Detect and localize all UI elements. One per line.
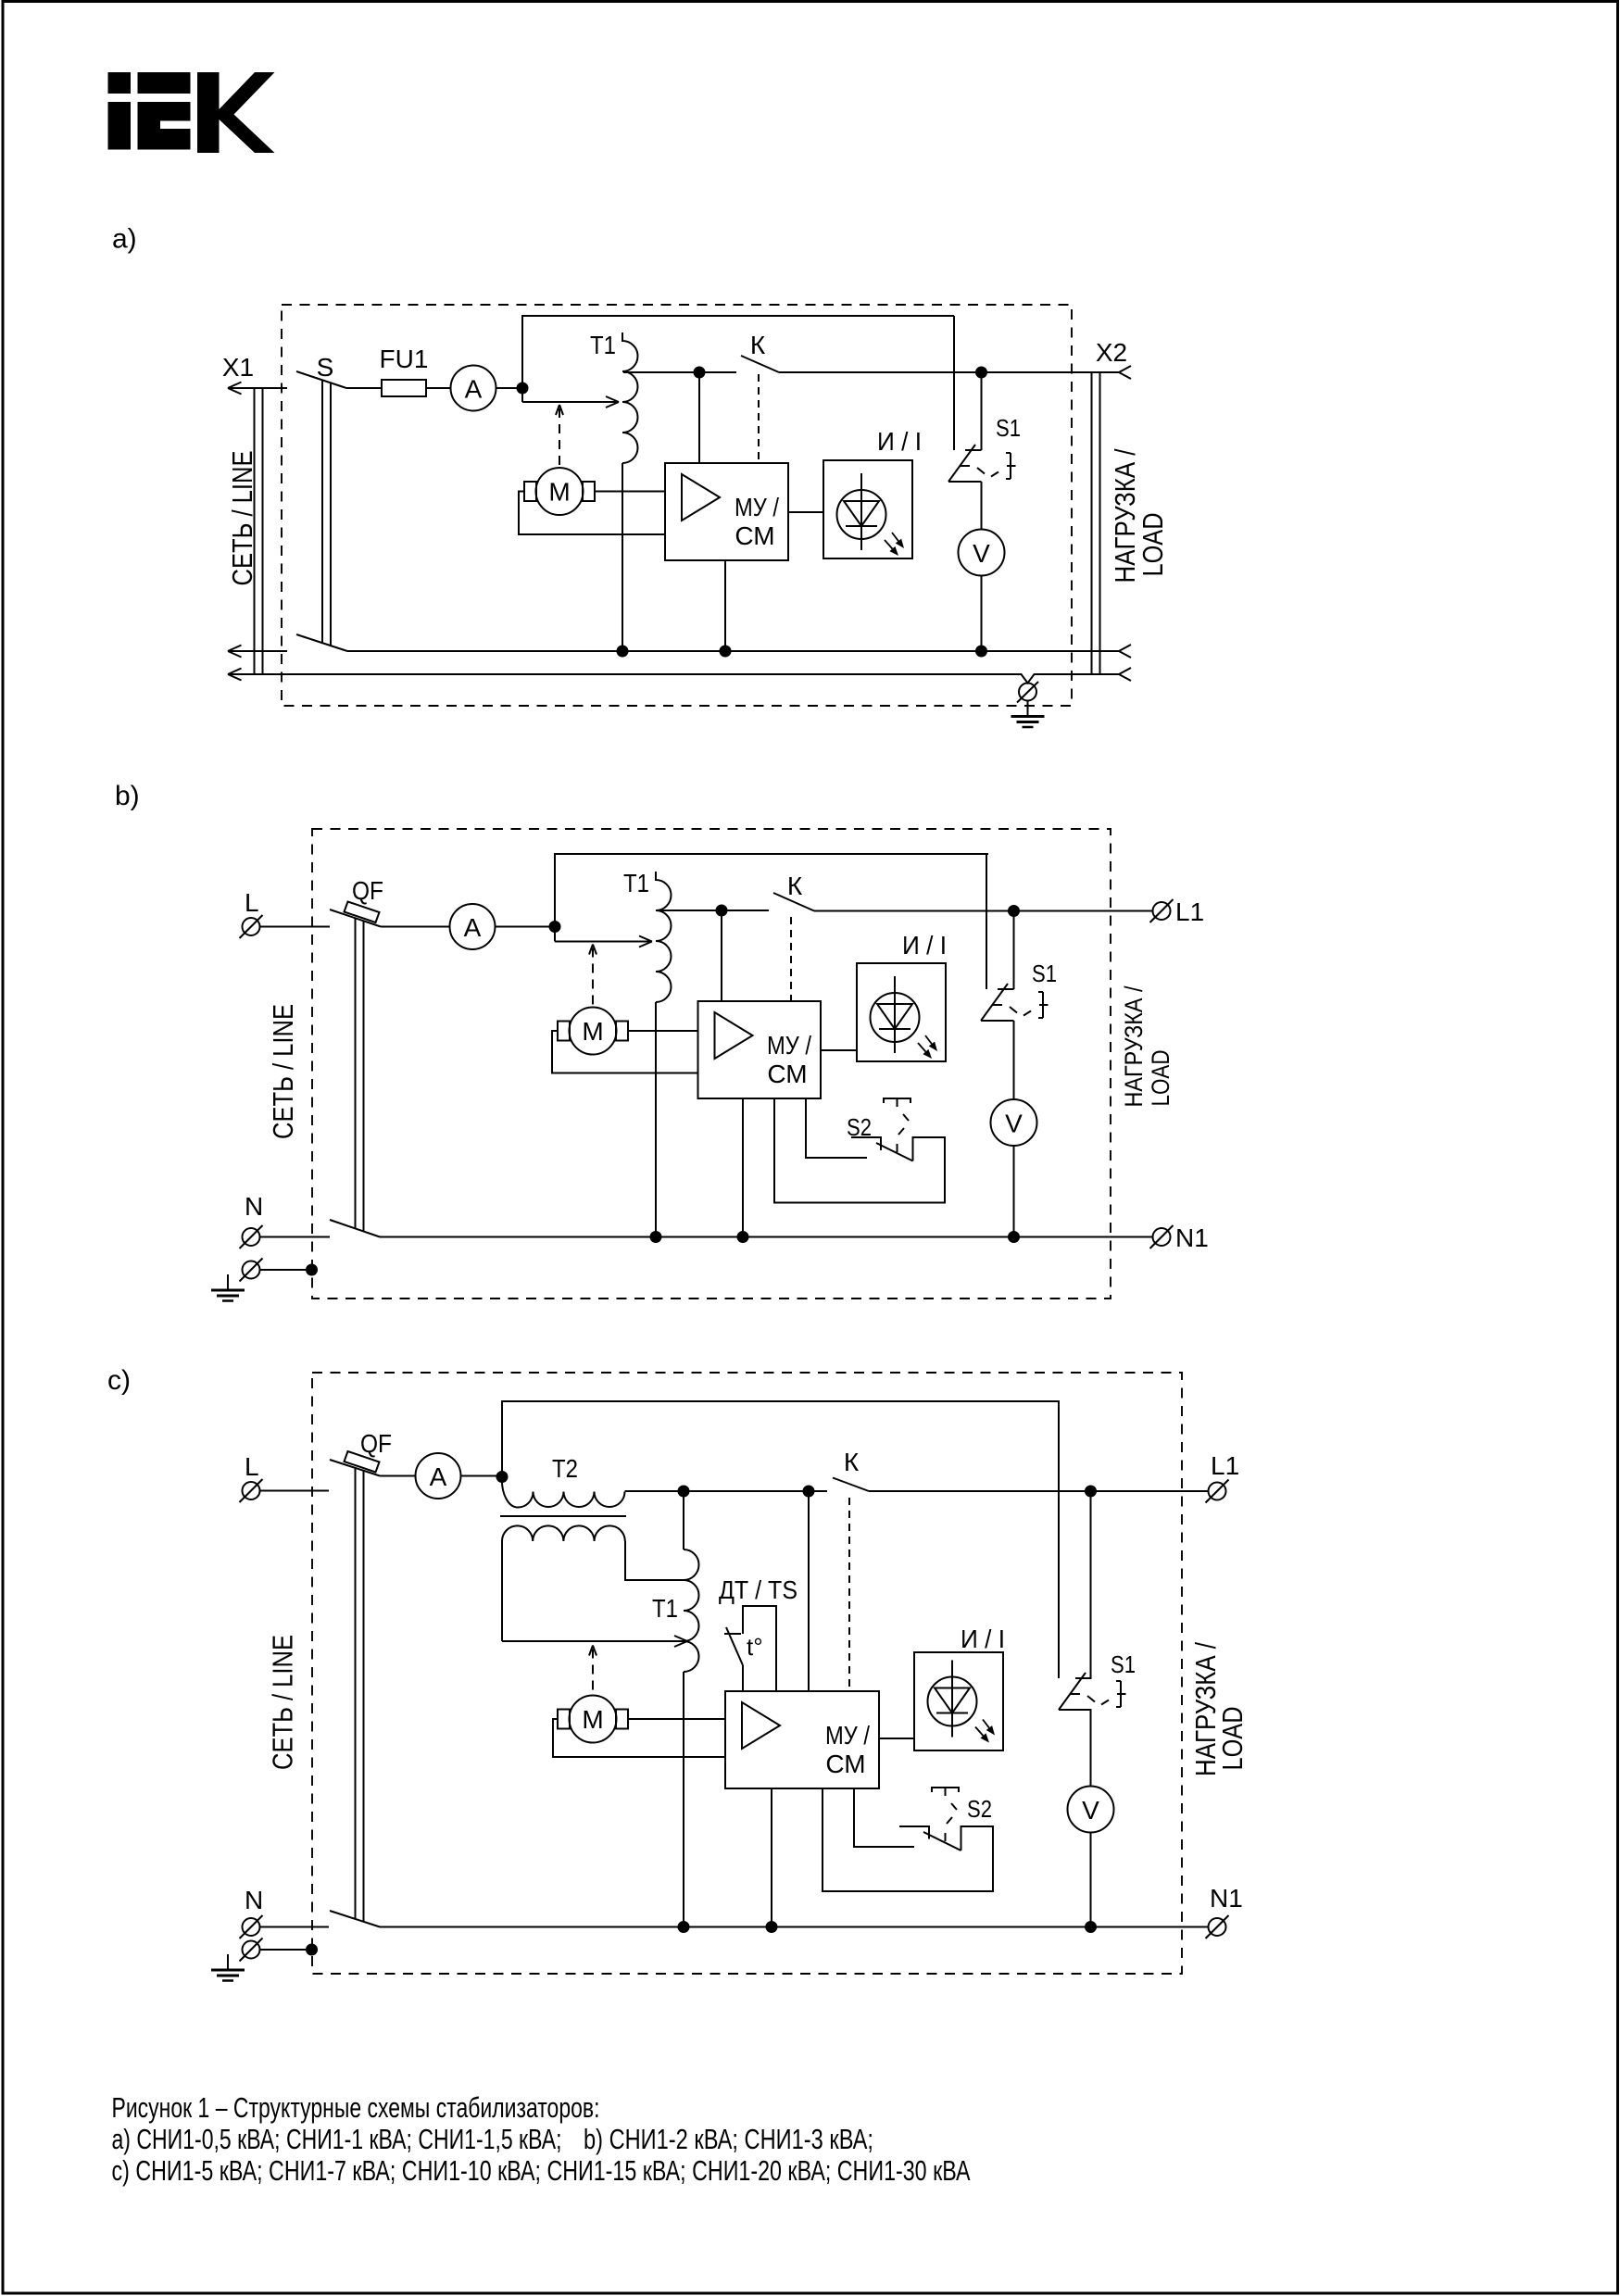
svg-text:И / I: И / I xyxy=(961,1625,1005,1653)
svg-text:М: М xyxy=(582,1705,603,1734)
svg-text:СЕТЬ / LINE: СЕТЬ / LINE xyxy=(267,1635,299,1770)
svg-text:b) СНИ1-2 кВА; СНИ1-3 кВА;: b) СНИ1-2 кВА; СНИ1-3 кВА; xyxy=(584,2123,873,2155)
svg-text:L1: L1 xyxy=(1175,897,1204,926)
svg-text:FU1: FU1 xyxy=(380,345,429,373)
svg-text:МУ /: МУ / xyxy=(825,1721,870,1750)
svg-text:S2: S2 xyxy=(967,1795,992,1823)
svg-text:b): b) xyxy=(115,781,140,811)
svg-text:N1: N1 xyxy=(1210,1884,1243,1913)
svg-text:LOAD: LOAD xyxy=(1147,1050,1174,1107)
svg-text:К: К xyxy=(844,1448,860,1476)
svg-text:Т2: Т2 xyxy=(552,1454,578,1483)
svg-text:V: V xyxy=(1082,1796,1099,1825)
svg-text:Рисунок 1 – Структурные схемы: Рисунок 1 – Структурные схемы стабилизат… xyxy=(112,2091,600,2124)
svg-text:МУ /: МУ / xyxy=(735,493,779,521)
svg-text:М: М xyxy=(548,478,570,507)
svg-text:ДТ / TS: ДТ / TS xyxy=(719,1575,797,1604)
svg-text:S1: S1 xyxy=(1111,1650,1136,1678)
svg-text:N: N xyxy=(245,1192,263,1221)
svg-text:А: А xyxy=(430,1462,447,1491)
svg-text:N1: N1 xyxy=(1175,1223,1209,1252)
svg-text:X2: X2 xyxy=(1096,338,1127,367)
svg-text:СЕТЬ / LINE: СЕТЬ / LINE xyxy=(267,1004,299,1139)
svg-text:t°: t° xyxy=(747,1633,763,1661)
svg-text:L1: L1 xyxy=(1211,1451,1239,1480)
svg-text:L: L xyxy=(245,1452,259,1481)
svg-text:МУ /: МУ / xyxy=(767,1031,811,1060)
svg-text:LOAD: LOAD xyxy=(1137,513,1169,577)
svg-text:И / I: И / I xyxy=(902,931,947,960)
svg-text:А: А xyxy=(465,375,483,404)
svg-text:S: S xyxy=(317,353,334,382)
svg-text:c): c) xyxy=(107,1365,131,1396)
svg-text:НАГРУЗКА /: НАГРУЗКА / xyxy=(1120,985,1148,1107)
svg-text:Т1: Т1 xyxy=(590,331,616,359)
svg-text:L: L xyxy=(245,888,259,917)
svg-text:СМ: СМ xyxy=(767,1060,807,1088)
svg-text:S1: S1 xyxy=(1032,960,1057,987)
svg-text:Т1: Т1 xyxy=(652,1594,678,1623)
svg-text:А: А xyxy=(464,913,482,942)
svg-text:a): a) xyxy=(112,224,137,255)
svg-text:К: К xyxy=(787,872,803,900)
svg-text:М: М xyxy=(582,1017,603,1046)
svg-text:N: N xyxy=(245,1886,263,1914)
svg-text:a) СНИ1-0,5 кВА; СНИ1-1 кВА; С: a) СНИ1-0,5 кВА; СНИ1-1 кВА; СНИ1-1,5 кВ… xyxy=(112,2123,562,2155)
svg-text:V: V xyxy=(973,539,990,568)
svg-text:И / I: И / I xyxy=(877,427,922,456)
svg-text:QF: QF xyxy=(352,876,383,905)
svg-text:X1: X1 xyxy=(222,353,254,382)
svg-text:V: V xyxy=(1005,1110,1023,1138)
svg-text:QF: QF xyxy=(360,1429,392,1458)
svg-text:S1: S1 xyxy=(996,414,1021,442)
svg-text:СЕТЬ / LINE: СЕТЬ / LINE xyxy=(226,451,258,586)
svg-text:СМ: СМ xyxy=(735,521,774,550)
svg-text:К: К xyxy=(750,331,766,359)
svg-text:LOAD: LOAD xyxy=(1216,1707,1249,1771)
svg-text:СМ: СМ xyxy=(825,1750,865,1778)
svg-text:Т1: Т1 xyxy=(623,869,649,897)
svg-text:S2: S2 xyxy=(847,1113,872,1141)
svg-text:c) СНИ1-5 кВА; СНИ1-7 кВА; СНИ: c) СНИ1-5 кВА; СНИ1-7 кВА; СНИ1-10 кВА; … xyxy=(112,2154,971,2187)
